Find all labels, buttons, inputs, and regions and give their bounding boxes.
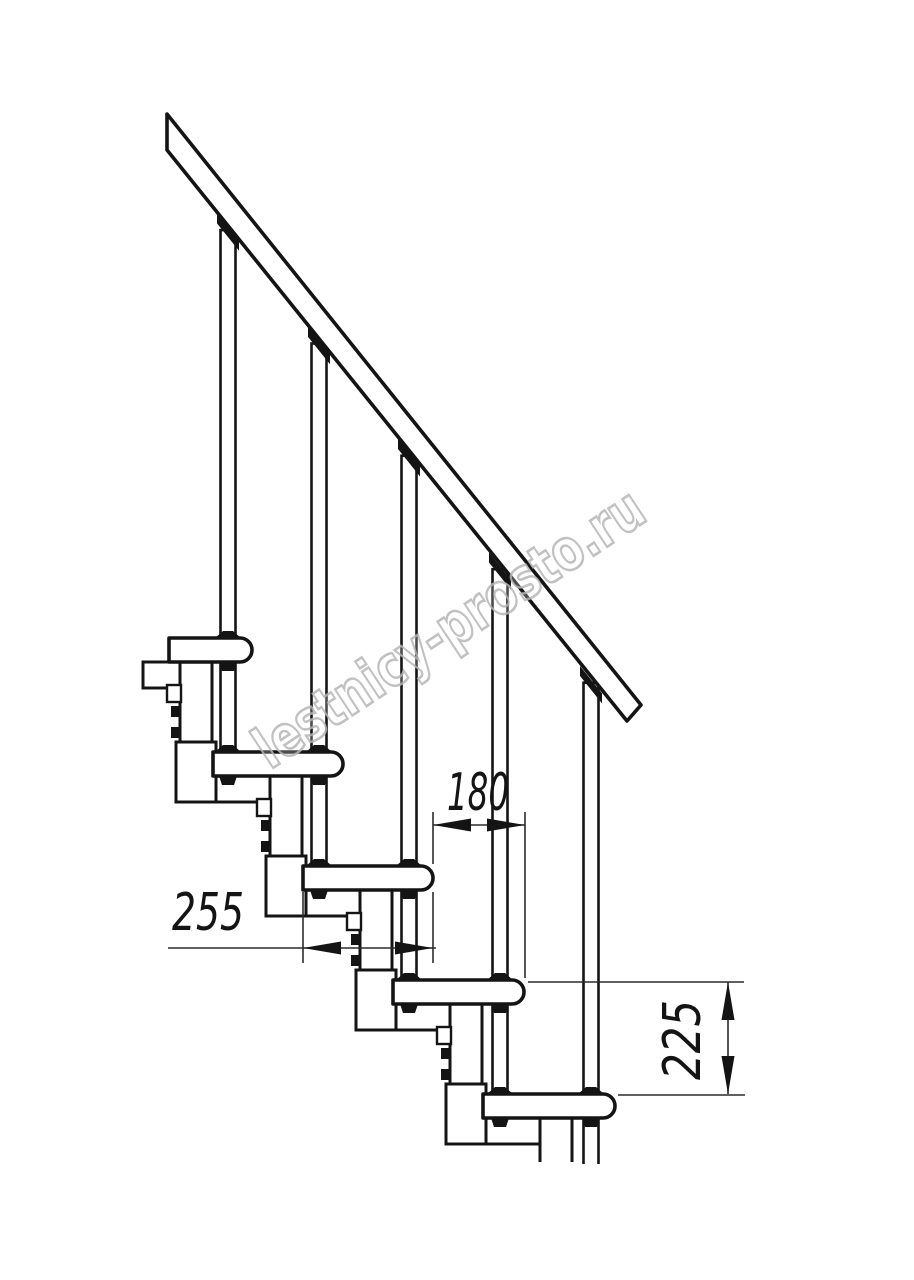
- tread: [303, 866, 433, 890]
- baluster-nut: [400, 890, 418, 899]
- baluster: [221, 230, 236, 752]
- stem-bolt: [261, 841, 271, 852]
- dimension-arrow: [303, 942, 341, 955]
- stem-bolt: [441, 1048, 451, 1059]
- stem-tab: [437, 1027, 451, 1044]
- module-stem: [450, 1004, 482, 1084]
- technical-drawing-page: 180255225lestnicy-prosto.ru: [0, 0, 914, 1280]
- stem-bolt: [171, 727, 181, 738]
- baluster-collar: [396, 973, 422, 980]
- module-socket: [356, 970, 396, 1030]
- baluster-collar: [396, 859, 422, 866]
- tread: [169, 638, 252, 662]
- dimension-label-180: 180: [447, 763, 509, 823]
- tread: [483, 1094, 615, 1118]
- staircase-drawing: 180255225lestnicy-prosto.ru: [0, 0, 914, 1280]
- module-socket: [266, 856, 306, 916]
- module-socket: [176, 742, 216, 802]
- dimension-label-255: 255: [172, 883, 244, 943]
- module-socket: [446, 1084, 486, 1144]
- baluster-collar: [487, 1087, 513, 1094]
- baluster-nut: [582, 1118, 600, 1127]
- dimension-label-225: 225: [653, 1000, 713, 1080]
- baluster-nut: [219, 776, 237, 785]
- stem-tab: [167, 685, 181, 702]
- module-stem: [270, 776, 302, 856]
- stem-bolt: [171, 706, 181, 717]
- baluster: [493, 569, 508, 1094]
- baluster-collar: [578, 1087, 604, 1094]
- module-stem: [360, 890, 392, 970]
- dimension-arrow: [722, 1056, 735, 1094]
- module-stem: [180, 662, 212, 742]
- baluster-collar: [215, 745, 241, 752]
- stem-bolt: [351, 934, 361, 945]
- baluster-nut: [310, 890, 328, 899]
- baluster-nut: [491, 1004, 509, 1013]
- floor-stem: [540, 1118, 572, 1162]
- baluster-nut: [219, 662, 237, 671]
- baluster-collar: [306, 859, 332, 866]
- dimension-arrow: [722, 982, 735, 1020]
- baluster-nut: [310, 776, 328, 785]
- tread: [393, 980, 524, 1004]
- baluster-collar: [487, 973, 513, 980]
- stem-bolt: [351, 955, 361, 966]
- baluster: [402, 456, 417, 980]
- baluster-nut: [491, 1118, 509, 1127]
- baluster-nut: [400, 1004, 418, 1013]
- stem-bolt: [441, 1069, 451, 1080]
- stem-tab: [347, 913, 361, 930]
- stem-bolt: [261, 820, 271, 831]
- baluster: [312, 344, 327, 866]
- baluster-collar: [215, 631, 241, 638]
- stem-tab: [257, 799, 271, 816]
